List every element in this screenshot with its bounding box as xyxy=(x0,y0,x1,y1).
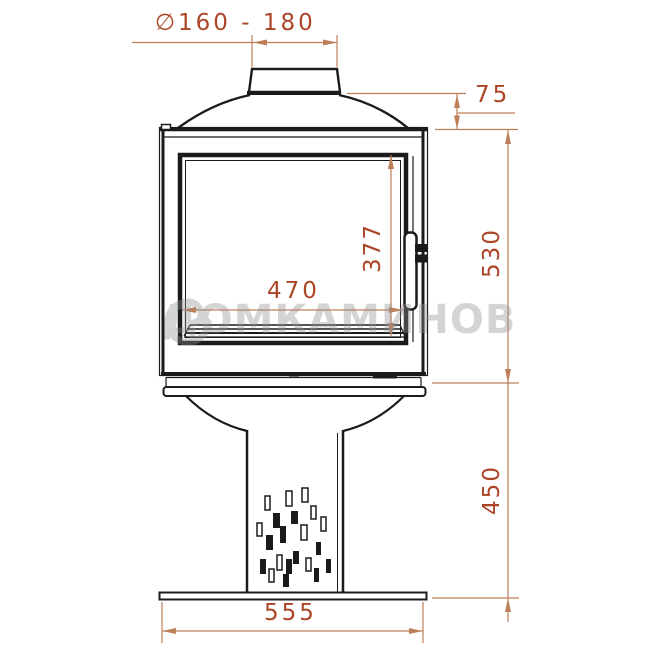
dim-flue-diameter-label: ∅160 - 180 xyxy=(155,11,316,35)
dim-base-width-label: 555 xyxy=(264,601,317,625)
dim-firebox-height-lines xyxy=(432,130,519,623)
dim-glass-width-lines xyxy=(182,307,403,313)
dim-dome-height-label: 75 xyxy=(475,83,510,107)
pedestal-perforations xyxy=(257,488,331,587)
stove-line-drawing xyxy=(0,0,650,650)
flue-collar xyxy=(247,69,341,93)
base-plate xyxy=(160,593,427,600)
dim-glass-height-label: 377 xyxy=(361,213,385,283)
dim-flue-diameter-lines xyxy=(132,35,337,67)
firebox-sill xyxy=(184,325,405,337)
technical-drawing-canvas: ∅160 - 180 75 530 450 377 470 555 ДОМКАМ… xyxy=(0,0,650,650)
dim-pedestal-height-label: 450 xyxy=(480,455,504,525)
dim-pedestal-height-lines xyxy=(432,598,519,612)
dim-firebox-height-label: 530 xyxy=(480,218,504,288)
dome-top xyxy=(178,95,408,128)
dim-glass-width-label: 470 xyxy=(267,279,320,303)
